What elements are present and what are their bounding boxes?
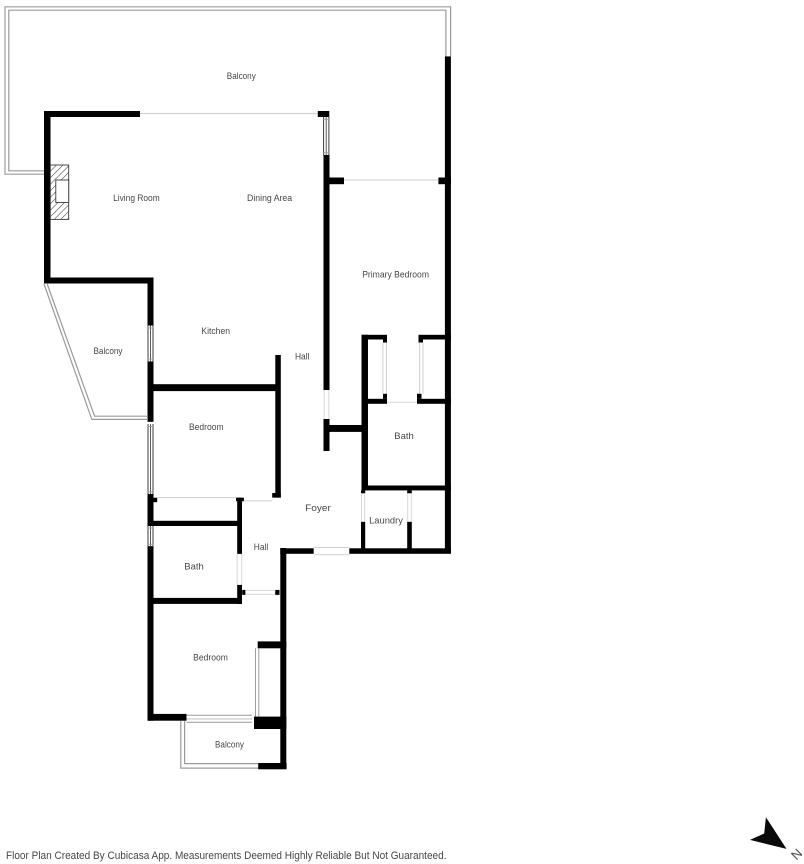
- svg-text:Bedroom: Bedroom: [189, 422, 224, 433]
- svg-text:Foyer: Foyer: [305, 503, 332, 514]
- svg-text:Bath: Bath: [394, 431, 414, 442]
- svg-text:Laundry: Laundry: [369, 515, 403, 526]
- svg-text:Hall: Hall: [295, 352, 310, 363]
- svg-text:Kitchen: Kitchen: [201, 326, 230, 337]
- svg-text:Bath: Bath: [184, 561, 204, 572]
- svg-text:Hall: Hall: [254, 542, 269, 553]
- svg-text:Primary Bedroom: Primary Bedroom: [362, 270, 429, 281]
- svg-text:Bedroom: Bedroom: [193, 652, 228, 663]
- svg-text:Balcony: Balcony: [94, 346, 123, 357]
- svg-text:Living Room: Living Room: [113, 193, 160, 204]
- svg-text:Balcony: Balcony: [215, 740, 244, 751]
- svg-text:Floor Plan Created By Cubicasa: Floor Plan Created By Cubicasa App. Meas…: [6, 850, 447, 862]
- svg-text:Dining Area: Dining Area: [247, 193, 293, 204]
- svg-text:Balcony: Balcony: [227, 71, 256, 82]
